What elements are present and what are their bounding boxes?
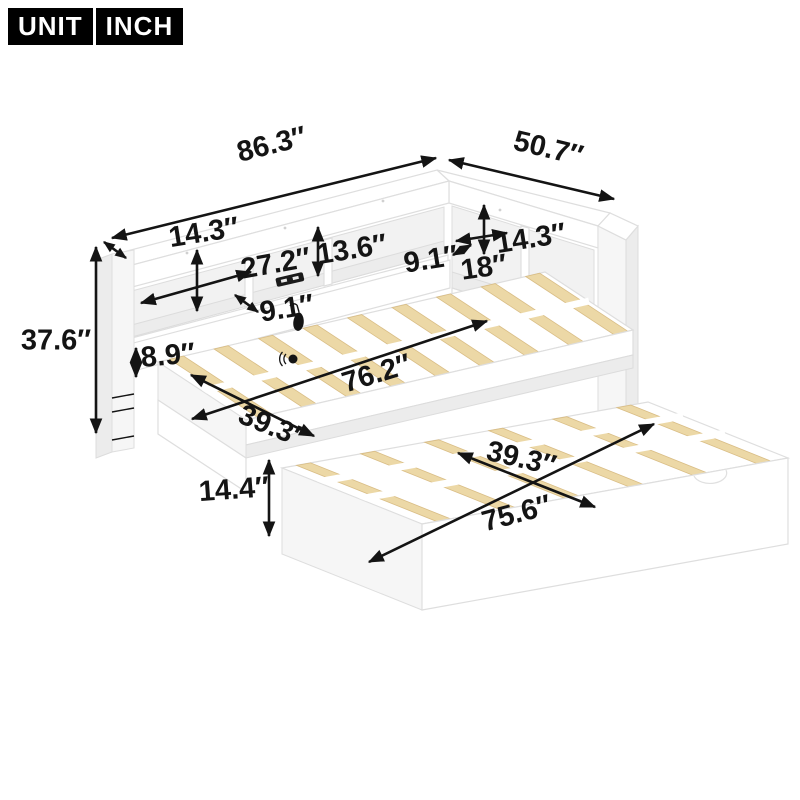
- label-overall-depth: 50.7″: [510, 125, 586, 173]
- label-overall-length: 86.3″: [234, 121, 310, 169]
- left-post-front: [112, 250, 134, 452]
- label-overall-height: 37.6″: [21, 325, 91, 357]
- product-dimension-diagram: UNIT INCH: [0, 0, 800, 800]
- left-post-side: [96, 254, 112, 458]
- label-trundle-height: 14.4″: [198, 471, 271, 508]
- label-side-rail-height: 8.9″: [139, 337, 196, 374]
- daybed-illustration: 86.3″ 50.7″ 14.3″ 27.2″ 13.6″ 9.1″ 9.1″ …: [0, 0, 800, 800]
